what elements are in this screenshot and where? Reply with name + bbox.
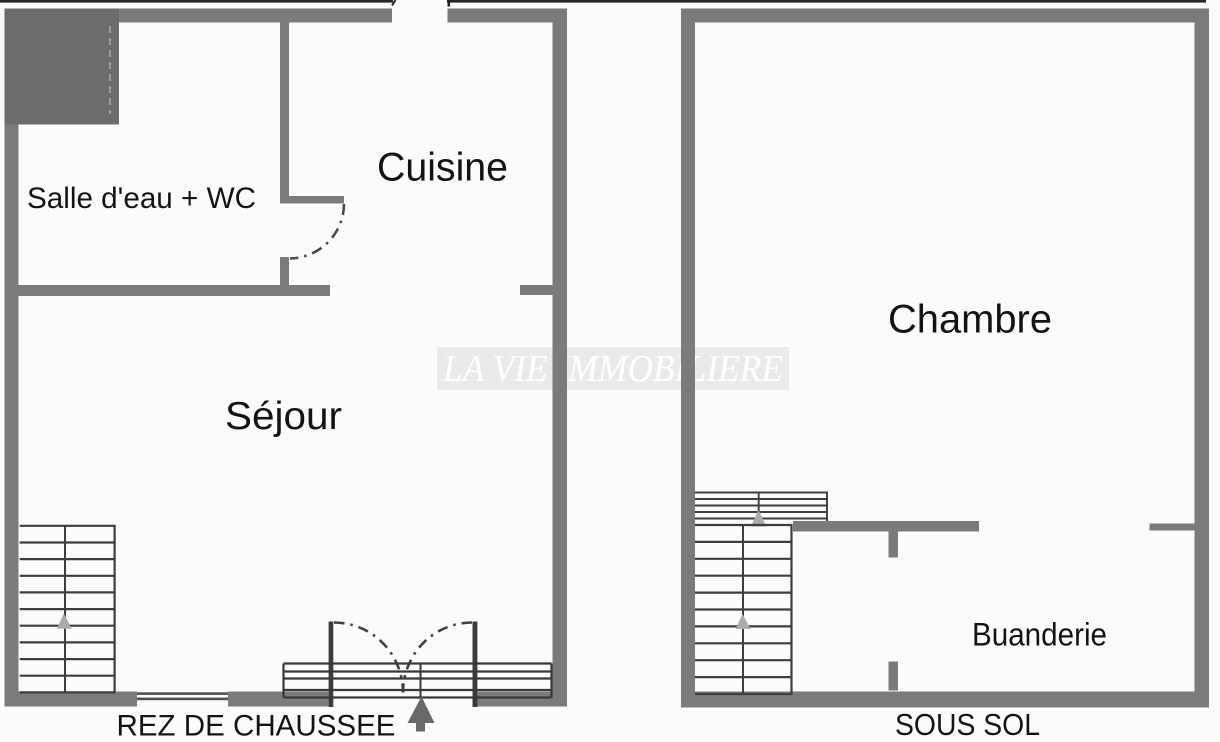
svg-text:Séjour: Séjour: [225, 395, 342, 438]
svg-text:LA VIE IMMOBILIERE: LA VIE IMMOBILIERE: [442, 348, 783, 390]
svg-text:SOUS SOL: SOUS SOL: [895, 707, 1040, 742]
svg-text:Salle d'eau + WC: Salle d'eau + WC: [27, 182, 256, 215]
svg-text:Buanderie: Buanderie: [972, 617, 1107, 653]
svg-text:Cuisine: Cuisine: [377, 146, 508, 190]
svg-text:REZ DE CHAUSSEE: REZ DE CHAUSSEE: [117, 709, 396, 742]
svg-text:Chambre: Chambre: [888, 298, 1052, 342]
